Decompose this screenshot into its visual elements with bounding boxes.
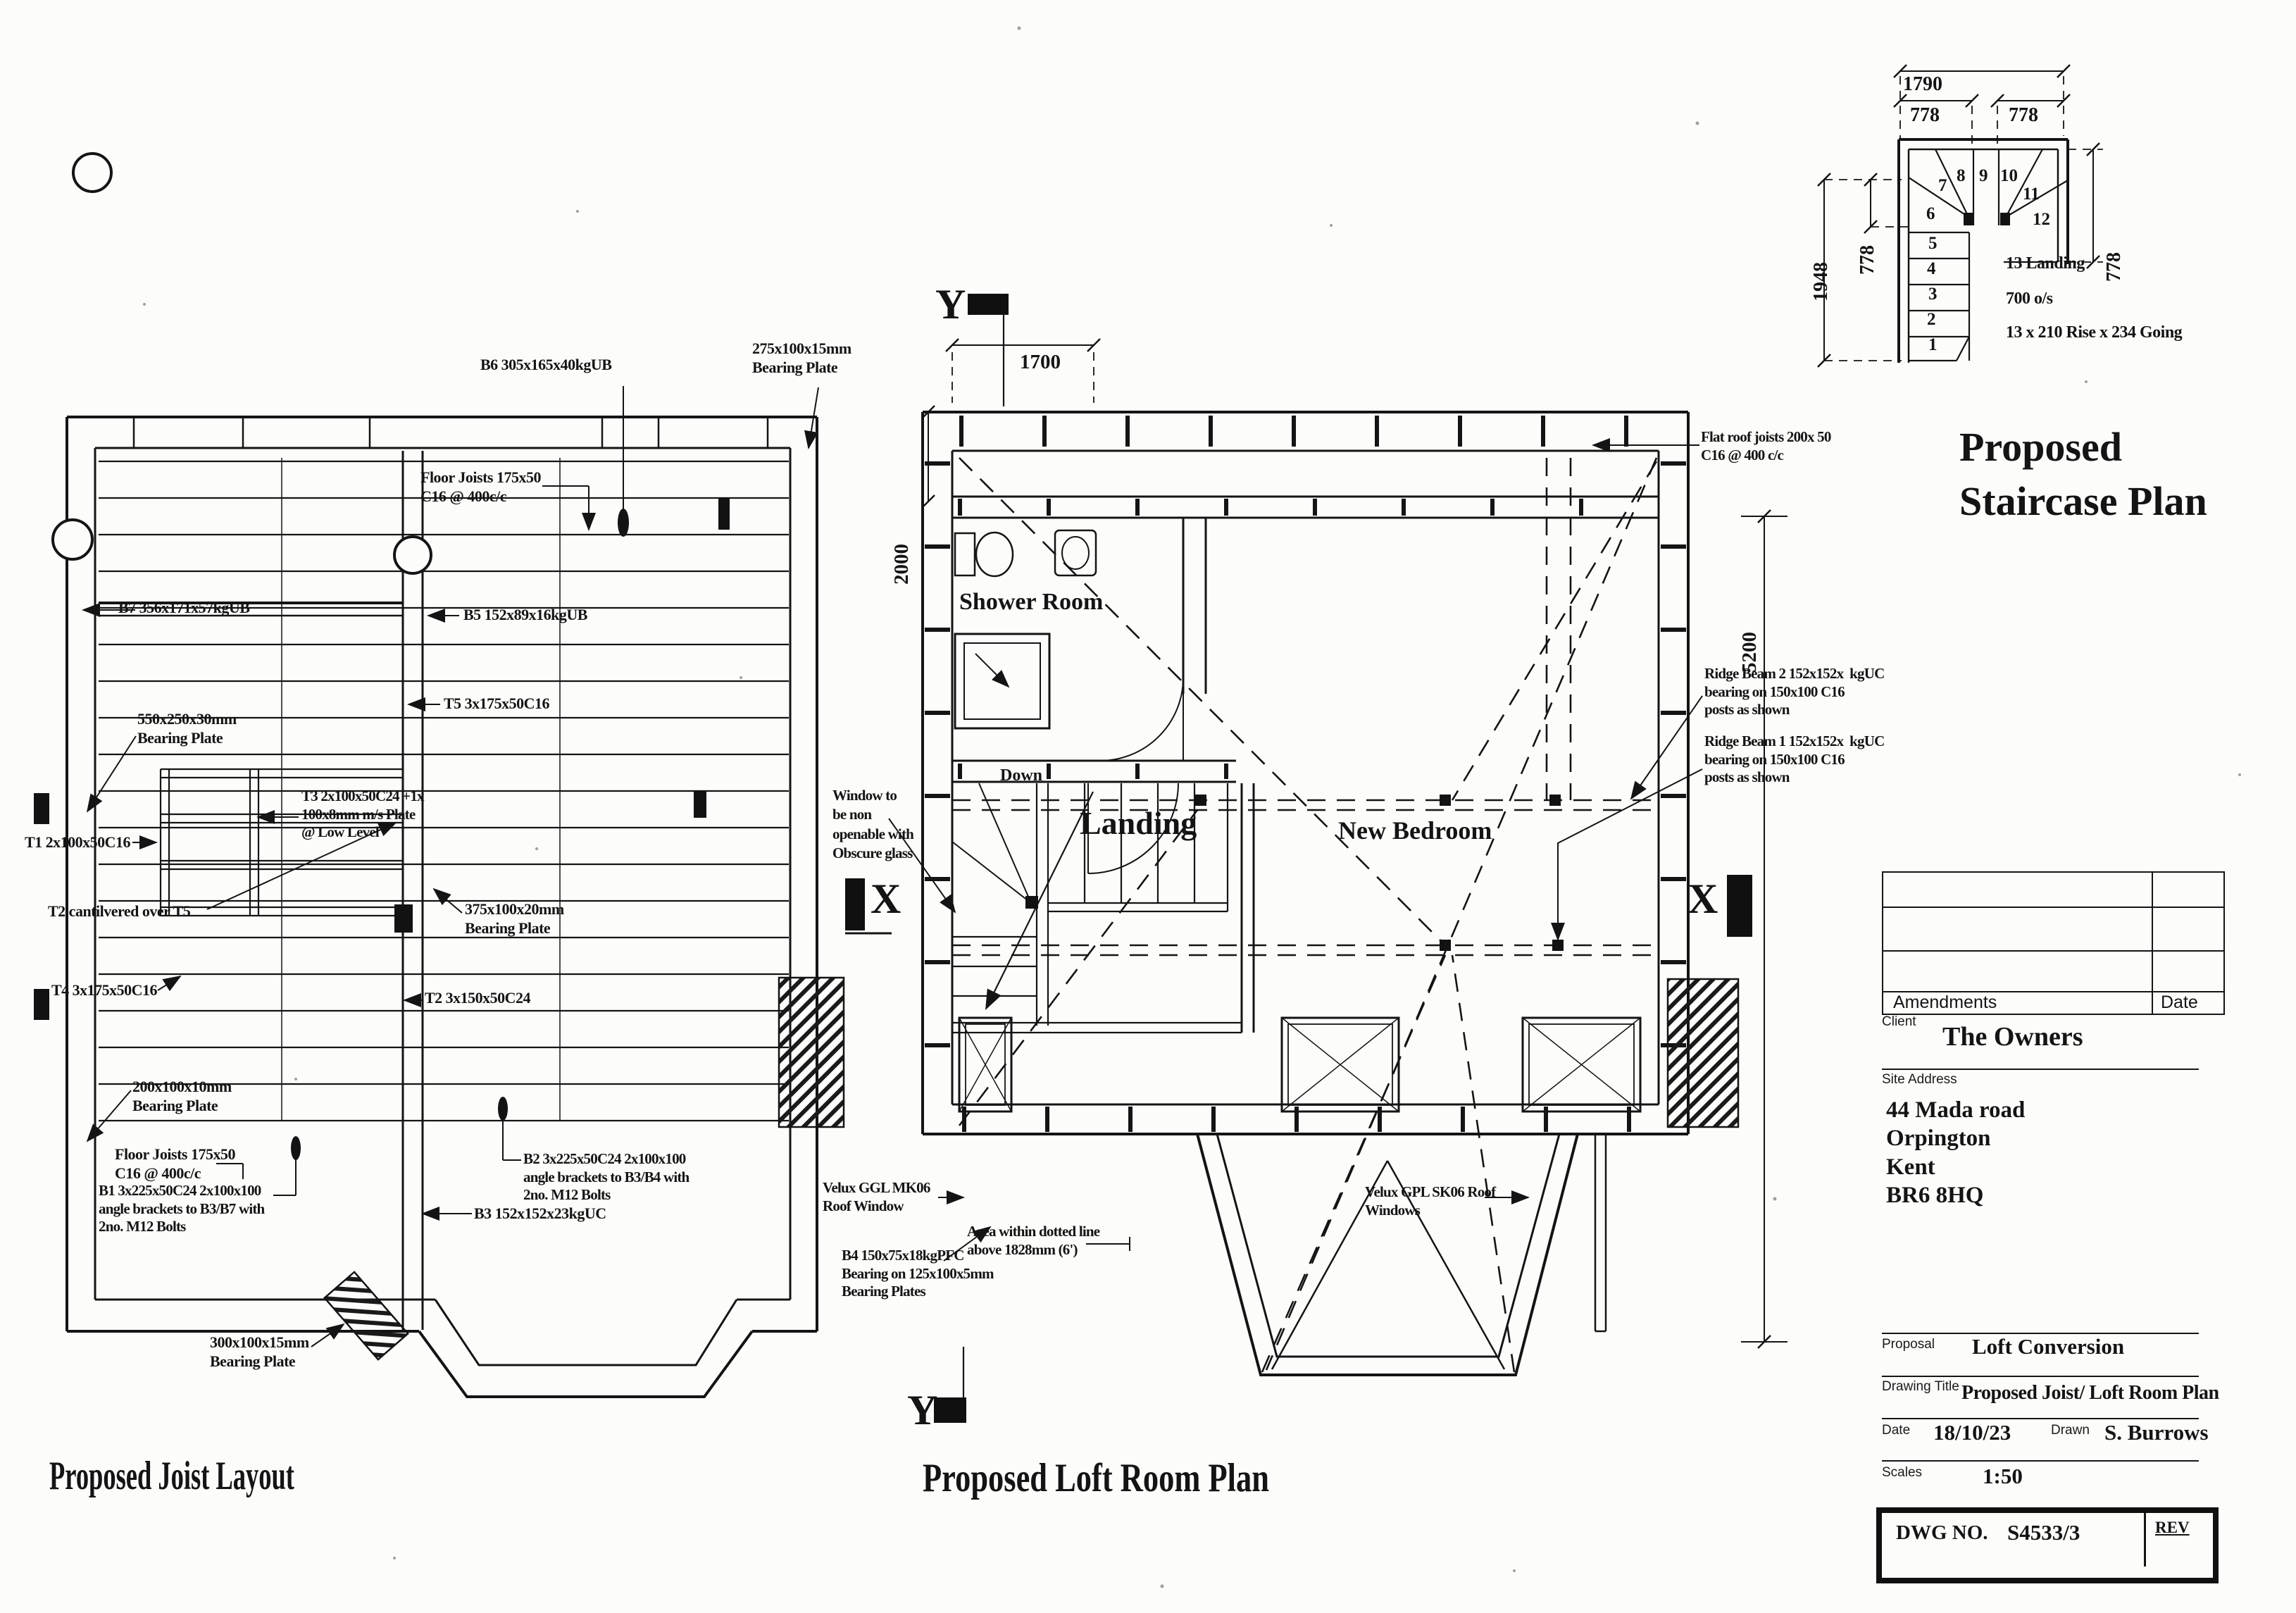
- section-marker-y-bottom: Y: [907, 1386, 937, 1435]
- label-area-note: Area within dotted line above 1828mm (6'…: [967, 1223, 1099, 1259]
- scales-value: 1:50: [1983, 1464, 2023, 1489]
- dwg-box: DWG NO. S4533/3 REV: [1876, 1507, 2219, 1583]
- dim-778-top-left: 778: [1910, 104, 1940, 127]
- label-flat-roof-joists: Flat roof joists 200x 50 C16 @ 400 c/c: [1701, 428, 1831, 464]
- note-13-landing: 13 Landing: [2006, 254, 2085, 274]
- step-1: 1: [1928, 335, 1938, 355]
- step-10: 10: [2000, 166, 2018, 186]
- loft-room-title: Proposed Loft Room Plan: [923, 1455, 1269, 1501]
- section-flag-y-bottom: [934, 1397, 966, 1423]
- label-b5: B5 152x89x16kgUB: [463, 606, 587, 625]
- dwg-divider: [2144, 1513, 2146, 1567]
- table-row-line: [1883, 907, 2223, 908]
- label-velux-gpl: Velux GPL SK06 Roof Windows: [1365, 1183, 1495, 1219]
- step-3: 3: [1928, 285, 1938, 304]
- label-bearing-plate-300: 300x100x15mm Bearing Plate: [210, 1333, 309, 1371]
- divider: [1882, 1069, 2199, 1070]
- label-floor-joists-top: Floor Joists 175x50 C16 @ 400c/c: [420, 468, 541, 506]
- label-window-note: Window to be non openable with Obscure g…: [832, 786, 913, 863]
- label-b2: B2 3x225x50C24 2x100x100 angle brackets …: [523, 1150, 689, 1204]
- dim-1790: 1790: [1903, 73, 1942, 96]
- section-marker-y-top: Y: [935, 280, 966, 329]
- dwg-rev-label: REV: [2155, 1519, 2190, 1537]
- label-b6: B6 305x165x40kgUB: [480, 356, 611, 375]
- step-11: 11: [2023, 185, 2040, 204]
- divider: [1882, 1460, 2199, 1462]
- section-flag-y-top: [968, 294, 1009, 315]
- step-8: 8: [1957, 166, 1966, 186]
- drawing-title-label: Drawing Title: [1882, 1379, 1959, 1395]
- dwg-label: DWG NO.: [1896, 1521, 1988, 1545]
- drawing-sheet: B6 305x165x40kgUB 275x100x15mm Bearing P…: [0, 0, 2296, 1613]
- drawn-value: S. Burrows: [2104, 1420, 2209, 1445]
- label-velux-ggl: Velux GGL MK06 Roof Window: [823, 1179, 930, 1215]
- proposal-value: Loft Conversion: [1972, 1334, 2124, 1359]
- step-4: 4: [1927, 259, 1936, 279]
- section-marker-x-right: X: [1687, 875, 1718, 923]
- room-new-bedroom: New Bedroom: [1338, 816, 1492, 845]
- staircase-newels: [1964, 213, 2010, 225]
- staircase-title: Proposed Staircase Plan: [1959, 420, 2213, 528]
- dim-778-top-right: 778: [2009, 104, 2038, 127]
- label-ridge-beam-2: Ridge Beam 2 152x152x kgUC bearing on 15…: [1704, 665, 1884, 719]
- divider: [1882, 1418, 2199, 1419]
- step-12: 12: [2033, 210, 2050, 230]
- joist-layout-title: Proposed Joist Layout: [49, 1453, 294, 1499]
- client-value: The Owners: [1942, 1021, 2083, 1052]
- label-bearing-plate-200: 200x100x10mm Bearing Plate: [132, 1078, 232, 1116]
- note-700-os: 700 o/s: [2006, 289, 2053, 309]
- label-bearing-plate-550: 550x250x30mm Bearing Plate: [137, 710, 237, 748]
- label-t3: T3 2x100x50C24 +1x 100x8mm m/s Plate @ L…: [301, 787, 424, 842]
- section-flag-x-right: [1727, 875, 1752, 937]
- joist-plan-posts: [34, 497, 730, 1020]
- step-6: 6: [1926, 204, 1935, 224]
- label-t1: T1 2x100x50C16: [25, 833, 130, 852]
- label-t4: T4 3x175x50C16: [51, 981, 157, 1000]
- label-b1: B1 3x225x50C24 2x100x100 angle brackets …: [99, 1182, 264, 1236]
- date-value: 18/10/23: [1933, 1420, 2011, 1445]
- drawing-title-value: Proposed Joist/ Loft Room Plan: [1961, 1382, 2219, 1405]
- dim-778-right: 778: [2103, 252, 2126, 282]
- dim-778-side: 778: [1857, 245, 1879, 275]
- label-bearing-plate-375: 375x100x20mm Bearing Plate: [465, 900, 564, 938]
- dim-1948: 1948: [1810, 262, 1833, 301]
- section-marker-x-left: X: [871, 875, 901, 923]
- staircase-plan-linework: [1818, 65, 2103, 367]
- dwg-number: S4533/3: [2007, 1520, 2080, 1545]
- table-row-line: [1883, 950, 2223, 952]
- step-7: 7: [1938, 176, 1947, 196]
- client-label: Client: [1882, 1014, 1916, 1030]
- label-ridge-beam-1: Ridge Beam 1 152x152x kgUC bearing on 15…: [1704, 733, 1884, 787]
- site-address-value: 44 Mada road Orpington Kent BR6 8HQ: [1886, 1096, 2025, 1209]
- section-flag-x-left: [845, 878, 865, 930]
- proposal-label: Proposal: [1882, 1337, 1935, 1352]
- label-floor-joists-bottom: Floor Joists 175x50 C16 @ 400c/c: [115, 1145, 235, 1183]
- dim-2000: 2000: [890, 544, 913, 585]
- amendments-date-header: Date: [2161, 992, 2198, 1013]
- label-b7: B7 356x171x57kgUB: [118, 599, 249, 618]
- room-down: Down: [1000, 766, 1042, 785]
- divider: [1882, 1376, 2199, 1377]
- room-shower: Shower Room: [959, 589, 1103, 616]
- note-rise-going: 13 x 210 Rise x 234 Going: [2006, 323, 2182, 343]
- amendments-table: Amendments Date: [1882, 871, 2225, 1015]
- label-t2-cantilever: T2 cantilvered over T5: [48, 902, 190, 921]
- date-label: Date: [1882, 1423, 1910, 1438]
- site-address-label: Site Address: [1882, 1072, 1957, 1088]
- step-5: 5: [1928, 234, 1938, 254]
- label-bearing-plate-275: 275x100x15mm Bearing Plate: [752, 340, 851, 378]
- amendments-header: Amendments: [1893, 992, 1997, 1013]
- loft-plan-leaders: [889, 445, 1702, 1261]
- room-landing: Landing: [1080, 804, 1197, 842]
- dim-1700: 1700: [1020, 351, 1061, 374]
- drawn-label: Drawn: [2051, 1423, 2090, 1438]
- label-b3: B3 152x152x23kgUC: [474, 1204, 606, 1223]
- step-9: 9: [1979, 166, 1988, 186]
- scales-label: Scales: [1882, 1465, 1922, 1481]
- table-col-line: [2152, 873, 2153, 1014]
- step-2: 2: [1927, 310, 1936, 330]
- registration-circle: [73, 154, 111, 192]
- loft-hatch-patch: [1668, 979, 1738, 1127]
- label-t2: T2 3x150x50C24: [425, 989, 530, 1008]
- label-t5: T5 3x175x50C16: [444, 695, 549, 714]
